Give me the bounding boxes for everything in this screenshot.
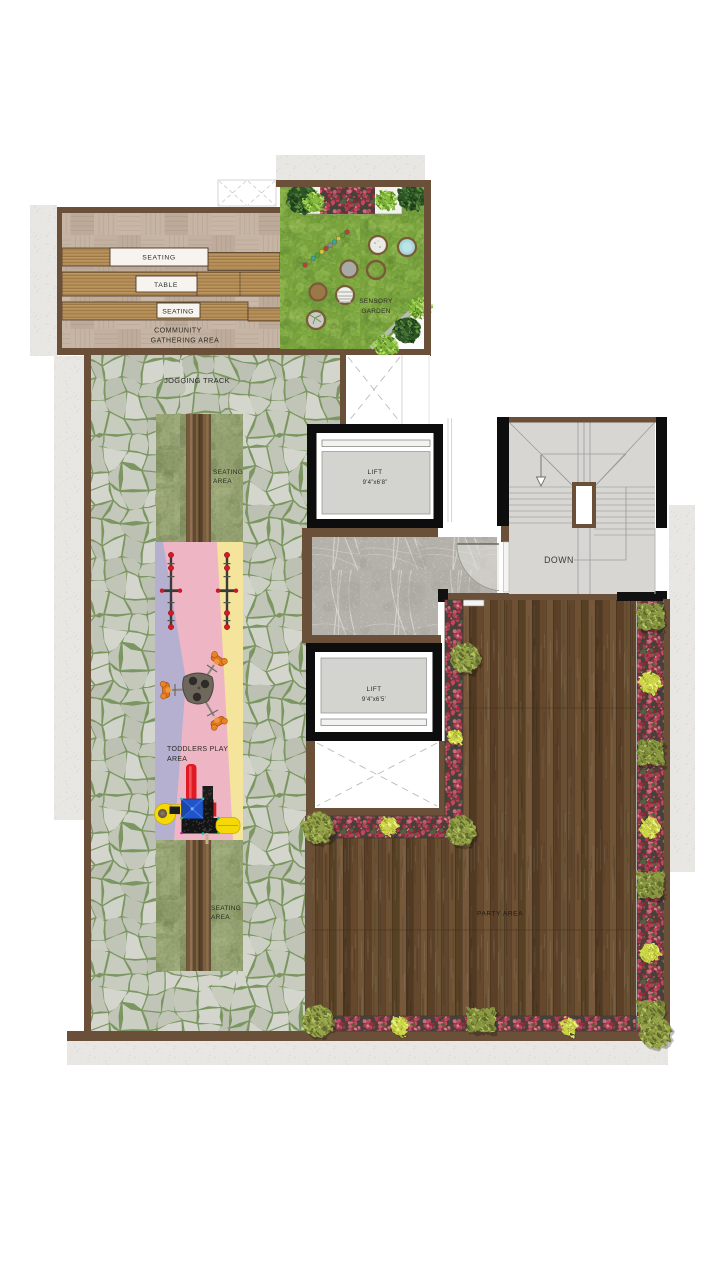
svg-text:AREA: AREA	[211, 914, 230, 921]
svg-text:AREA: AREA	[167, 756, 187, 763]
svg-text:LIFT: LIFT	[367, 686, 382, 693]
svg-text:SEATING: SEATING	[162, 309, 193, 316]
svg-text:AREA: AREA	[213, 478, 232, 485]
svg-text:GATHERING AREA: GATHERING AREA	[151, 338, 220, 345]
svg-text:PARTY AREA: PARTY AREA	[477, 911, 523, 918]
svg-text:LIFT: LIFT	[368, 469, 383, 476]
svg-text:9’4”x6’5’: 9’4”x6’5’	[362, 697, 386, 703]
svg-text:SEATING: SEATING	[211, 905, 241, 912]
svg-text:DOWN: DOWN	[544, 555, 574, 565]
svg-text:TODDLERS PLAY: TODDLERS PLAY	[167, 746, 228, 753]
svg-text:TABLE: TABLE	[154, 282, 178, 289]
svg-text:COMMUNITY: COMMUNITY	[154, 328, 202, 335]
svg-text:JOGGING TRACK: JOGGING TRACK	[164, 376, 230, 385]
svg-text:SEATING: SEATING	[142, 255, 176, 262]
svg-text:SEATING: SEATING	[213, 469, 243, 476]
svg-text:GARDEN: GARDEN	[361, 308, 390, 315]
svg-text:9’4”x6’8”: 9’4”x6’8”	[363, 480, 388, 486]
svg-text:SENSORY: SENSORY	[359, 298, 393, 305]
